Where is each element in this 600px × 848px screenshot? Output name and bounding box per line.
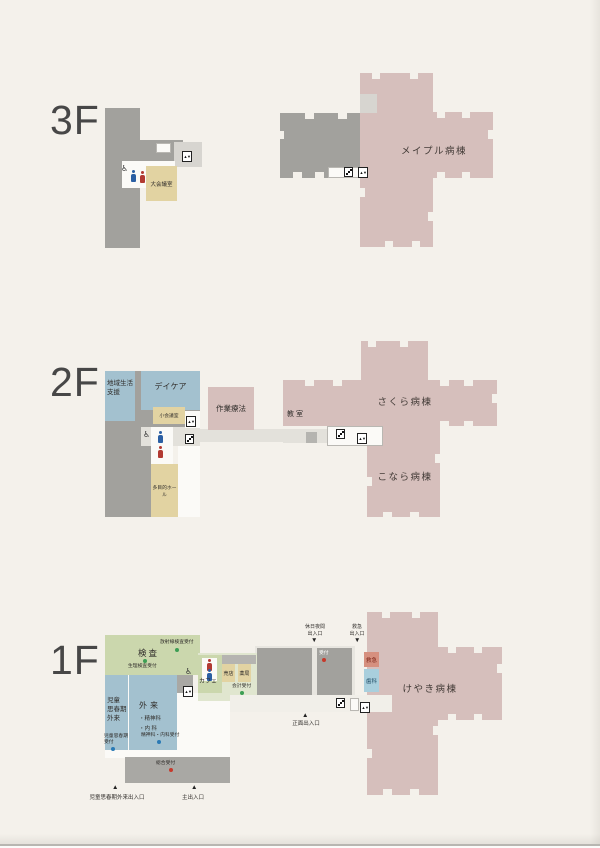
stairs-icon xyxy=(336,429,345,439)
corridor-1f-box xyxy=(350,698,359,711)
reception-dot xyxy=(322,658,326,662)
page-edge-shadow-bottom xyxy=(0,834,600,844)
notch xyxy=(385,241,393,247)
room-1f-dental: 歯科 xyxy=(364,669,379,692)
notch xyxy=(367,749,372,758)
notch xyxy=(448,647,456,653)
notch xyxy=(367,477,372,486)
wheelchair-icon: ♿ xyxy=(185,668,192,676)
stairs-icon xyxy=(185,434,194,444)
notch xyxy=(440,421,449,426)
child-reception-line2: 受付 xyxy=(104,740,128,746)
notch xyxy=(462,172,470,178)
notch xyxy=(368,341,376,347)
emergency-label: 救急 xyxy=(366,656,377,664)
entrance-triangle-down: ▼ xyxy=(311,638,317,645)
notch xyxy=(464,380,473,386)
room-2f-east-white xyxy=(178,446,200,517)
daycare-label: デイケア xyxy=(155,381,187,392)
child-outpatient-label-line3: 外来 xyxy=(107,715,128,724)
radiology-reception-dot xyxy=(175,648,179,652)
notch xyxy=(410,73,418,79)
outpatient-psychiatry-label: ・精神科 xyxy=(139,714,177,722)
elevator-icon: ▲▼ xyxy=(357,433,367,444)
notch xyxy=(400,341,408,347)
child-reception-dot xyxy=(111,747,115,751)
physiology-reception-dot xyxy=(143,659,147,663)
child-reception-label: 児童思春期 受付 xyxy=(104,734,128,746)
room-3f-maple-light xyxy=(360,94,377,113)
outpatient-internal-label: ・内 科 xyxy=(139,724,177,732)
shop-label: 売店 xyxy=(223,670,233,677)
reception-label: 受付 xyxy=(319,651,329,657)
community-support-label-line1: 地域生活 xyxy=(107,380,135,389)
notch xyxy=(280,131,284,139)
notch xyxy=(497,664,502,673)
building-1f-south-gray xyxy=(125,757,230,783)
holiday-night-entrance-label: 休日夜間 出入口 xyxy=(298,624,332,637)
notch xyxy=(437,172,445,178)
radiology-reception-label: 放射線検査受付 xyxy=(160,640,194,646)
building-1f-center-block-west xyxy=(257,648,312,695)
notch xyxy=(448,714,456,720)
child-outpatient-label-line1: 児童 xyxy=(107,697,128,706)
notch xyxy=(410,512,419,517)
notch xyxy=(428,212,433,221)
child-adolescent-entrance-label: 児童思春期外来出入口 xyxy=(72,795,162,802)
notch xyxy=(305,380,314,386)
notch xyxy=(383,789,392,795)
room-2f-multipurpose-hall: 多目的ホール xyxy=(151,464,178,517)
pharmacy-label: 薬局 xyxy=(239,670,249,677)
notch xyxy=(412,241,420,247)
room-2f-small-meeting: 小会議室 xyxy=(153,407,185,424)
ward-label-maple: メイプル病棟 xyxy=(392,143,476,157)
notch xyxy=(433,726,438,735)
toilet-female-icon xyxy=(139,171,145,183)
notch xyxy=(315,172,324,178)
wheelchair-icon: ♿ xyxy=(143,431,150,439)
examination-label: 検査 xyxy=(138,648,159,659)
ward-label-sakura: さくら病棟 xyxy=(363,394,447,408)
community-support-label-line2: 支援 xyxy=(107,389,135,398)
elevator-icon: ▲▼ xyxy=(360,702,370,713)
room-2f-daycare: デイケア xyxy=(141,371,200,410)
occupational-therapy-label: 作業療法 xyxy=(216,403,246,414)
floor-label-2f: 2F xyxy=(50,362,100,403)
room-1f-shop: 売店 xyxy=(222,664,235,682)
page-edge-shadow-right xyxy=(590,0,600,848)
hospital-floor-map: 3F 大会議室 ♿ ▲▼ ▲▼ メイプル病棟 2F 地域生活 支援 デイケア 小… xyxy=(0,0,600,848)
notch xyxy=(440,380,449,386)
cashier-reception-label: 会計受付 xyxy=(232,684,251,690)
general-reception-label: 総合受付 xyxy=(156,761,175,767)
entrance-triangle-up: ▲ xyxy=(112,785,118,792)
stairs-icon xyxy=(344,167,353,177)
psych-internal-reception-label: 精神科・内科受付 xyxy=(141,733,179,739)
building-2f-sakura-top xyxy=(361,341,428,381)
elevator-icon: ▲▼ xyxy=(186,416,196,427)
notch xyxy=(474,714,482,720)
notch xyxy=(488,130,493,139)
small-meeting-room-label: 小会議室 xyxy=(159,412,178,419)
general-reception-dot xyxy=(169,768,173,772)
toilet-male-icon xyxy=(157,431,163,443)
room-1f-pharmacy: 薬局 xyxy=(238,664,251,682)
ward-label-konara: こなら病棟 xyxy=(366,469,444,483)
room-3f-large-meeting: 大会議室 xyxy=(146,166,177,201)
room-1f-east-white xyxy=(177,693,230,758)
notch xyxy=(462,112,470,118)
outpatient-label: 外来 xyxy=(139,700,177,711)
wheelchair-icon: ♿ xyxy=(121,165,128,173)
entrance-triangle-down: ▼ xyxy=(354,638,360,645)
notch xyxy=(382,612,390,618)
main-entrance-label: 主出入口 xyxy=(175,795,211,802)
entrance-triangle-up: ▲ xyxy=(191,785,197,792)
notch xyxy=(474,647,482,653)
large-meeting-room-label: 大会議室 xyxy=(150,180,172,188)
floor-label-3f: 3F xyxy=(50,100,100,141)
multipurpose-hall-label: 多目的ホール xyxy=(151,484,178,498)
psych-internal-reception-dot xyxy=(157,740,161,744)
floor-label-1f: 1F xyxy=(50,640,100,681)
room-1f-emergency: 救急 xyxy=(364,652,379,667)
notch xyxy=(410,789,419,795)
notch xyxy=(412,612,420,618)
room-3f-small xyxy=(156,143,171,153)
corridor-2f-link xyxy=(200,429,283,442)
notch xyxy=(437,112,445,118)
elevator-icon: ▲▼ xyxy=(358,167,368,178)
child-outpatient-label-line2: 思春期 xyxy=(107,706,128,715)
toilet-male-icon xyxy=(130,170,136,182)
cafe-label: カフェ xyxy=(199,679,217,687)
notch xyxy=(338,113,347,119)
notch xyxy=(305,113,314,119)
dental-label: 歯科 xyxy=(366,677,377,685)
room-2f-stairs-block xyxy=(306,432,317,443)
elevator-icon: ▲▼ xyxy=(182,151,192,162)
notch xyxy=(360,188,365,197)
classroom-label: 教室 xyxy=(287,411,305,420)
notch xyxy=(435,454,440,463)
physiology-reception-label: 生理検査受付 xyxy=(128,664,157,670)
toilet-female-icon xyxy=(157,446,163,458)
notch xyxy=(492,394,497,403)
stairs-icon xyxy=(336,698,345,708)
notch xyxy=(383,512,392,517)
notch xyxy=(333,380,342,386)
ward-label-keyaki: けやき病棟 xyxy=(388,681,472,695)
notch xyxy=(293,172,302,178)
notch xyxy=(372,73,380,79)
front-entrance-label: 正面出入口 xyxy=(283,721,329,728)
entrance-triangle-up: ▲ xyxy=(302,713,308,720)
notch xyxy=(464,421,473,426)
elevator-icon: ▲▼ xyxy=(183,686,193,697)
room-1f-shop-gray xyxy=(222,655,256,664)
cashier-reception-dot xyxy=(240,691,244,695)
room-2f-community-support: 地域生活 支援 xyxy=(105,371,135,421)
room-2f-occupational-therapy: 作業療法 xyxy=(208,387,254,430)
